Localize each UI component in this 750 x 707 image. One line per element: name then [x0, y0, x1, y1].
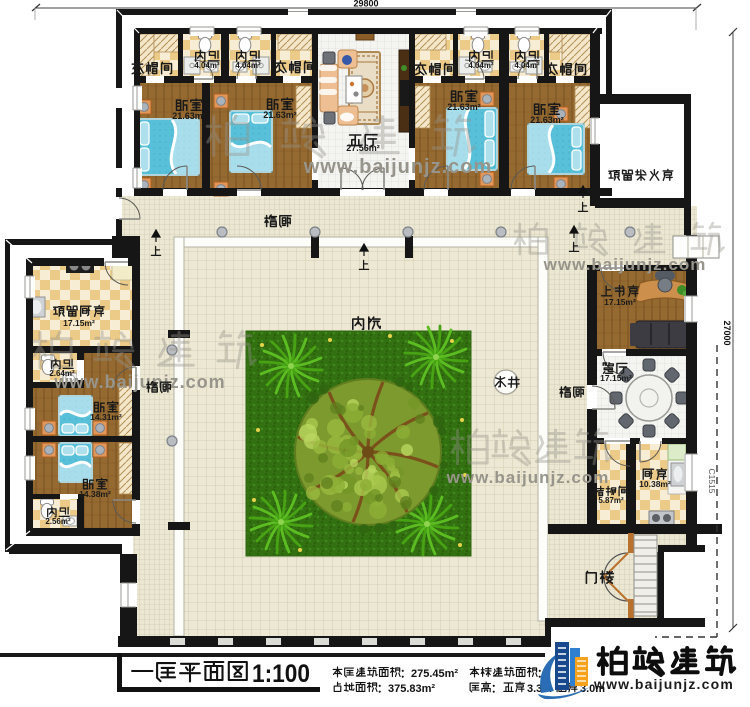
- svg-text:27.56m²: 27.56m²: [346, 143, 380, 153]
- svg-text:www.baijunjz.com: www.baijunjz.com: [446, 468, 610, 487]
- svg-text:C1515: C1515: [707, 468, 717, 493]
- svg-text:17.15m²: 17.15m²: [63, 318, 95, 328]
- svg-text:2.64m²: 2.64m²: [49, 369, 75, 378]
- svg-text:www.baijunjz.com: www.baijunjz.com: [543, 255, 707, 274]
- svg-text:www.baijunjz.com: www.baijunjz.com: [53, 372, 225, 392]
- svg-text:4.04m²: 4.04m²: [468, 61, 494, 70]
- svg-text:17.15m²: 17.15m²: [604, 297, 636, 307]
- svg-text:14.31m²: 14.31m²: [90, 412, 122, 422]
- svg-text:21.63m²: 21.63m²: [530, 115, 564, 125]
- svg-text:21.63m²: 21.63m²: [263, 110, 297, 120]
- svg-text:29800: 29800: [353, 0, 378, 9]
- svg-text:5.87m²: 5.87m²: [598, 496, 624, 505]
- svg-text:：: ：: [491, 683, 502, 695]
- svg-text:：275.45m²: ：275.45m²: [400, 668, 458, 680]
- svg-text:1:100: 1:100: [252, 660, 310, 688]
- svg-text:21.63m²: 21.63m²: [447, 102, 481, 112]
- svg-text:14.38m²: 14.38m²: [79, 489, 111, 499]
- svg-text:4.04m²: 4.04m²: [235, 61, 261, 70]
- svg-text:4.04m²: 4.04m²: [514, 61, 540, 70]
- svg-text:27000: 27000: [722, 320, 732, 345]
- svg-text:www.baijunjz.com: www.baijunjz.com: [303, 156, 493, 178]
- svg-text:21.63m²: 21.63m²: [172, 111, 206, 121]
- svg-text:10.38m²: 10.38m²: [639, 479, 671, 489]
- svg-text:：375.83m²: ：375.83m²: [377, 683, 435, 695]
- svg-text:17.15m²: 17.15m²: [600, 373, 632, 383]
- svg-text:2.56m²: 2.56m²: [45, 517, 71, 526]
- svg-text:4.04m²: 4.04m²: [194, 61, 220, 70]
- svg-text:www.baijunjz.com: www.baijunjz.com: [593, 676, 734, 692]
